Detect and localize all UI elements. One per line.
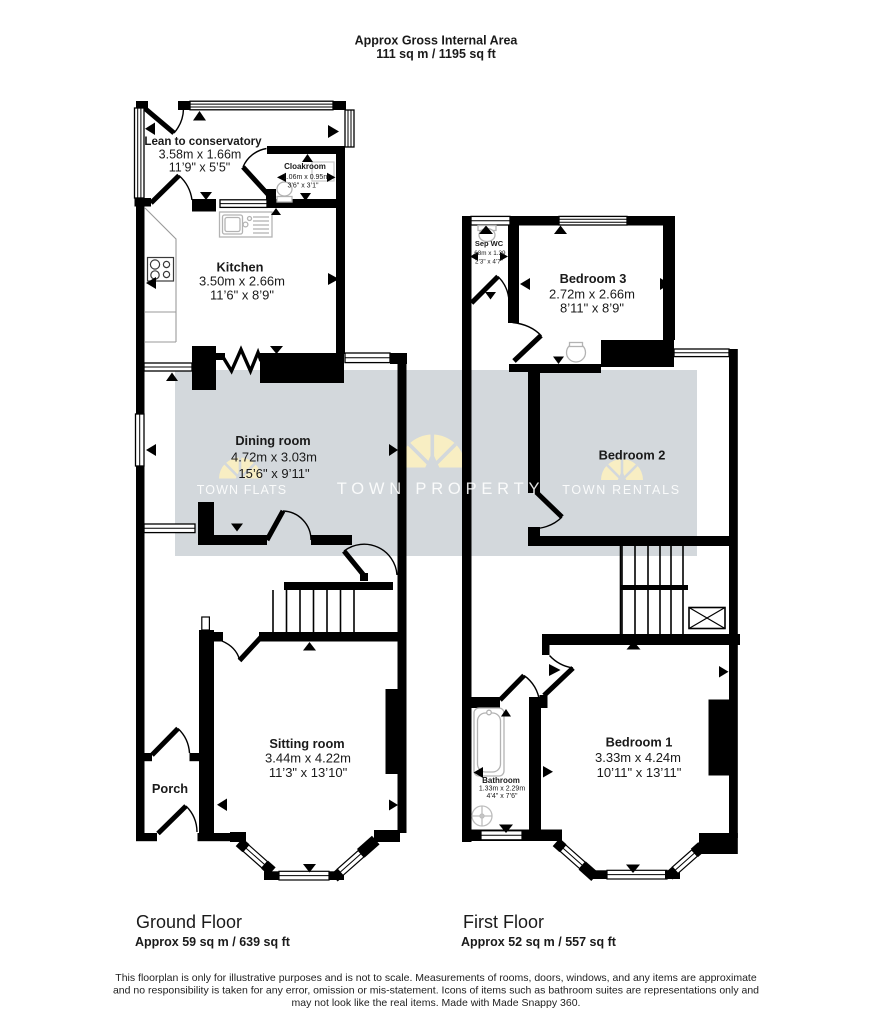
svg-text:Approx Gross Internal Area: Approx Gross Internal Area: [355, 34, 519, 48]
svg-text:4.72m x 3.03m: 4.72m x 3.03m: [231, 450, 317, 465]
svg-text:TOWN FLATS: TOWN FLATS: [197, 483, 287, 497]
svg-text:First Floor: First Floor: [463, 912, 544, 932]
svg-text:Porch: Porch: [152, 781, 188, 796]
svg-text:3.50m x 2.66m: 3.50m x 2.66m: [199, 274, 285, 289]
svg-text:2’3" x 4’7": 2’3" x 4’7": [475, 259, 503, 266]
svg-text:11’9" x 5’5": 11’9" x 5’5": [169, 161, 230, 175]
svg-text:may not look like the real ite: may not look like the real items. Made w…: [292, 997, 581, 1009]
svg-text:This floorplan is only for ill: This floorplan is only for illustrative …: [115, 972, 757, 984]
svg-text:Bedroom 1: Bedroom 1: [606, 735, 673, 750]
svg-text:Kitchen: Kitchen: [217, 260, 264, 275]
svg-text:Ground Floor: Ground Floor: [136, 912, 242, 932]
svg-text:11’3" x 13’10": 11’3" x 13’10": [269, 765, 348, 780]
svg-text:8’11" x 8’9": 8’11" x 8’9": [560, 301, 624, 316]
svg-text:1.06m x 0.95m: 1.06m x 0.95m: [283, 174, 329, 181]
svg-text:Cloakroom: Cloakroom: [284, 162, 326, 171]
svg-text:Dining room: Dining room: [235, 433, 310, 448]
svg-text:3’6" x 3’1": 3’6" x 3’1": [287, 183, 319, 190]
svg-text:Bedroom 3: Bedroom 3: [560, 271, 627, 286]
svg-text:3.44m x 4.22m: 3.44m x 4.22m: [265, 751, 351, 766]
svg-text:Sep WC: Sep WC: [475, 239, 504, 248]
svg-text:TOWN RENTALS: TOWN RENTALS: [562, 483, 681, 497]
svg-text:2.72m x 2.66m: 2.72m x 2.66m: [549, 287, 635, 302]
svg-text:11’6" x 8’9": 11’6" x 8’9": [210, 288, 274, 303]
svg-text:Sitting room: Sitting room: [269, 736, 344, 751]
svg-text:and no responsibility is taken: and no responsibility is taken for any e…: [113, 985, 759, 997]
svg-text:10’11" x 13’11": 10’11" x 13’11": [597, 765, 682, 780]
svg-text:4’4" x 7’6": 4’4" x 7’6": [486, 793, 518, 800]
svg-text:3.58m x 1.66m: 3.58m x 1.66m: [159, 148, 242, 162]
svg-text:15’6" x 9’11": 15’6" x 9’11": [238, 466, 310, 481]
svg-text:1.33m x 2.29m: 1.33m x 2.29m: [479, 786, 525, 793]
svg-text:.68m x 1.39: .68m x 1.39: [473, 250, 506, 257]
svg-text:TOWN PROPERTY: TOWN PROPERTY: [337, 480, 545, 498]
svg-text:Approx 52 sq m / 557 sq ft: Approx 52 sq m / 557 sq ft: [461, 935, 617, 949]
svg-text:Approx 59 sq m / 639 sq ft: Approx 59 sq m / 639 sq ft: [135, 935, 291, 949]
svg-text:Bathroom: Bathroom: [482, 776, 520, 785]
svg-text:Bedroom 2: Bedroom 2: [599, 448, 666, 463]
svg-text:111 sq m / 1195 sq ft: 111 sq m / 1195 sq ft: [376, 47, 496, 61]
svg-text:3.33m x 4.24m: 3.33m x 4.24m: [595, 750, 681, 765]
svg-text:Lean to conservatory: Lean to conservatory: [144, 135, 262, 148]
